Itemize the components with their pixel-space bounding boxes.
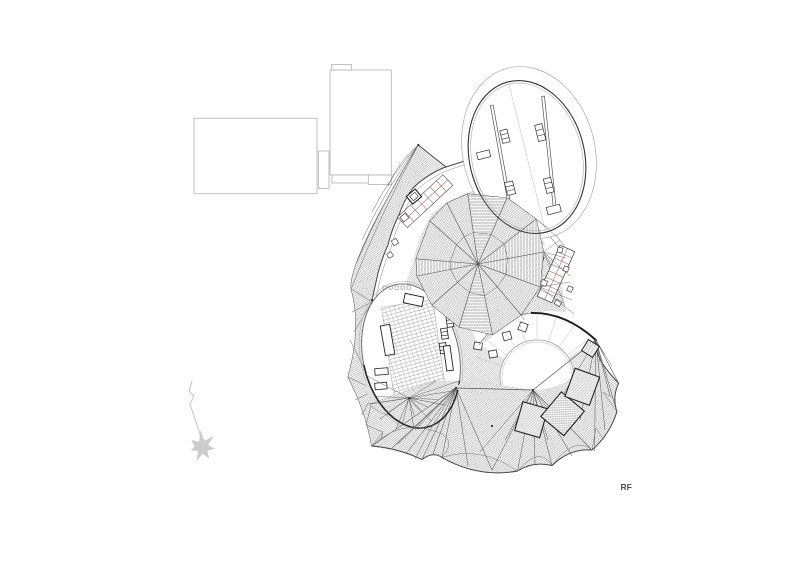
svg-text:RF: RF: [621, 482, 632, 492]
